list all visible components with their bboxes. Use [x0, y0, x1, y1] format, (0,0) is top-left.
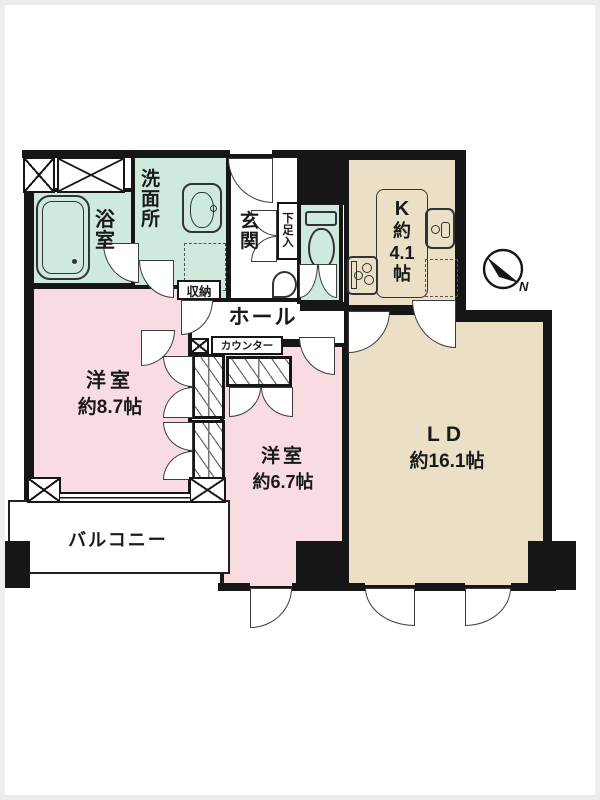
crosshatch-pillar	[57, 157, 125, 193]
shoe-cabinet-box: 下 足 入	[277, 202, 299, 260]
toilet-icon	[305, 211, 337, 226]
counter-label: カウンター	[221, 338, 274, 353]
wall	[24, 150, 33, 502]
hall-label: ホール	[215, 301, 311, 331]
bathtub-icon	[36, 195, 90, 280]
window	[60, 492, 190, 503]
sink-icon	[182, 183, 222, 233]
door-arc	[465, 588, 511, 626]
hand-basin-icon	[272, 271, 297, 298]
door-arc	[365, 588, 415, 626]
stove-icon	[347, 256, 378, 295]
counter-label-box: カウンター	[211, 336, 283, 355]
closet	[226, 356, 292, 387]
western-room-87-label: 洋室 約8.7帖	[58, 368, 162, 421]
compass-icon: N	[478, 246, 538, 304]
western-room-67-label: 洋室 約6.7帖	[233, 444, 333, 494]
bath-label: 浴 室	[92, 210, 118, 252]
wall	[455, 314, 552, 322]
wall	[344, 150, 466, 160]
toilet-bowl-icon	[308, 228, 335, 269]
crosshatch-pillar	[189, 477, 226, 503]
pillar	[528, 541, 576, 590]
wall	[218, 583, 250, 591]
door-arc	[181, 300, 213, 335]
crosshatch-pillar	[27, 477, 61, 503]
wall	[415, 583, 465, 591]
storage-label: 収納	[186, 281, 211, 300]
kitchen-sink-icon	[425, 208, 455, 249]
pillar	[0, 541, 30, 588]
pillar	[296, 541, 344, 590]
compass-north-label: N	[519, 279, 528, 294]
floor-plan: 収納 カウンター 下 足 入 浴 室 洗 面 所 玄 関 K 約 4.1 帖 ホ…	[0, 0, 600, 800]
closet	[192, 354, 225, 419]
living-dining-label: LD 約16.1帖	[397, 420, 497, 476]
pipe-shaft	[300, 150, 344, 205]
crosshatch-pillar	[190, 338, 209, 354]
refrigerator-space	[425, 259, 458, 297]
crosshatch-pillar	[23, 157, 55, 193]
balcony-label: バルコニー	[30, 526, 206, 552]
door-arc	[250, 588, 292, 628]
washroom-label: 洗 面 所	[138, 170, 163, 230]
storage-label-box: 収納	[177, 280, 221, 300]
kitchen-label: K 約 4.1 帖	[384, 197, 420, 286]
shoe-cabinet-label: 下 足 入	[282, 213, 294, 249]
closet	[192, 420, 225, 482]
entrance-label: 玄 関	[237, 212, 262, 252]
